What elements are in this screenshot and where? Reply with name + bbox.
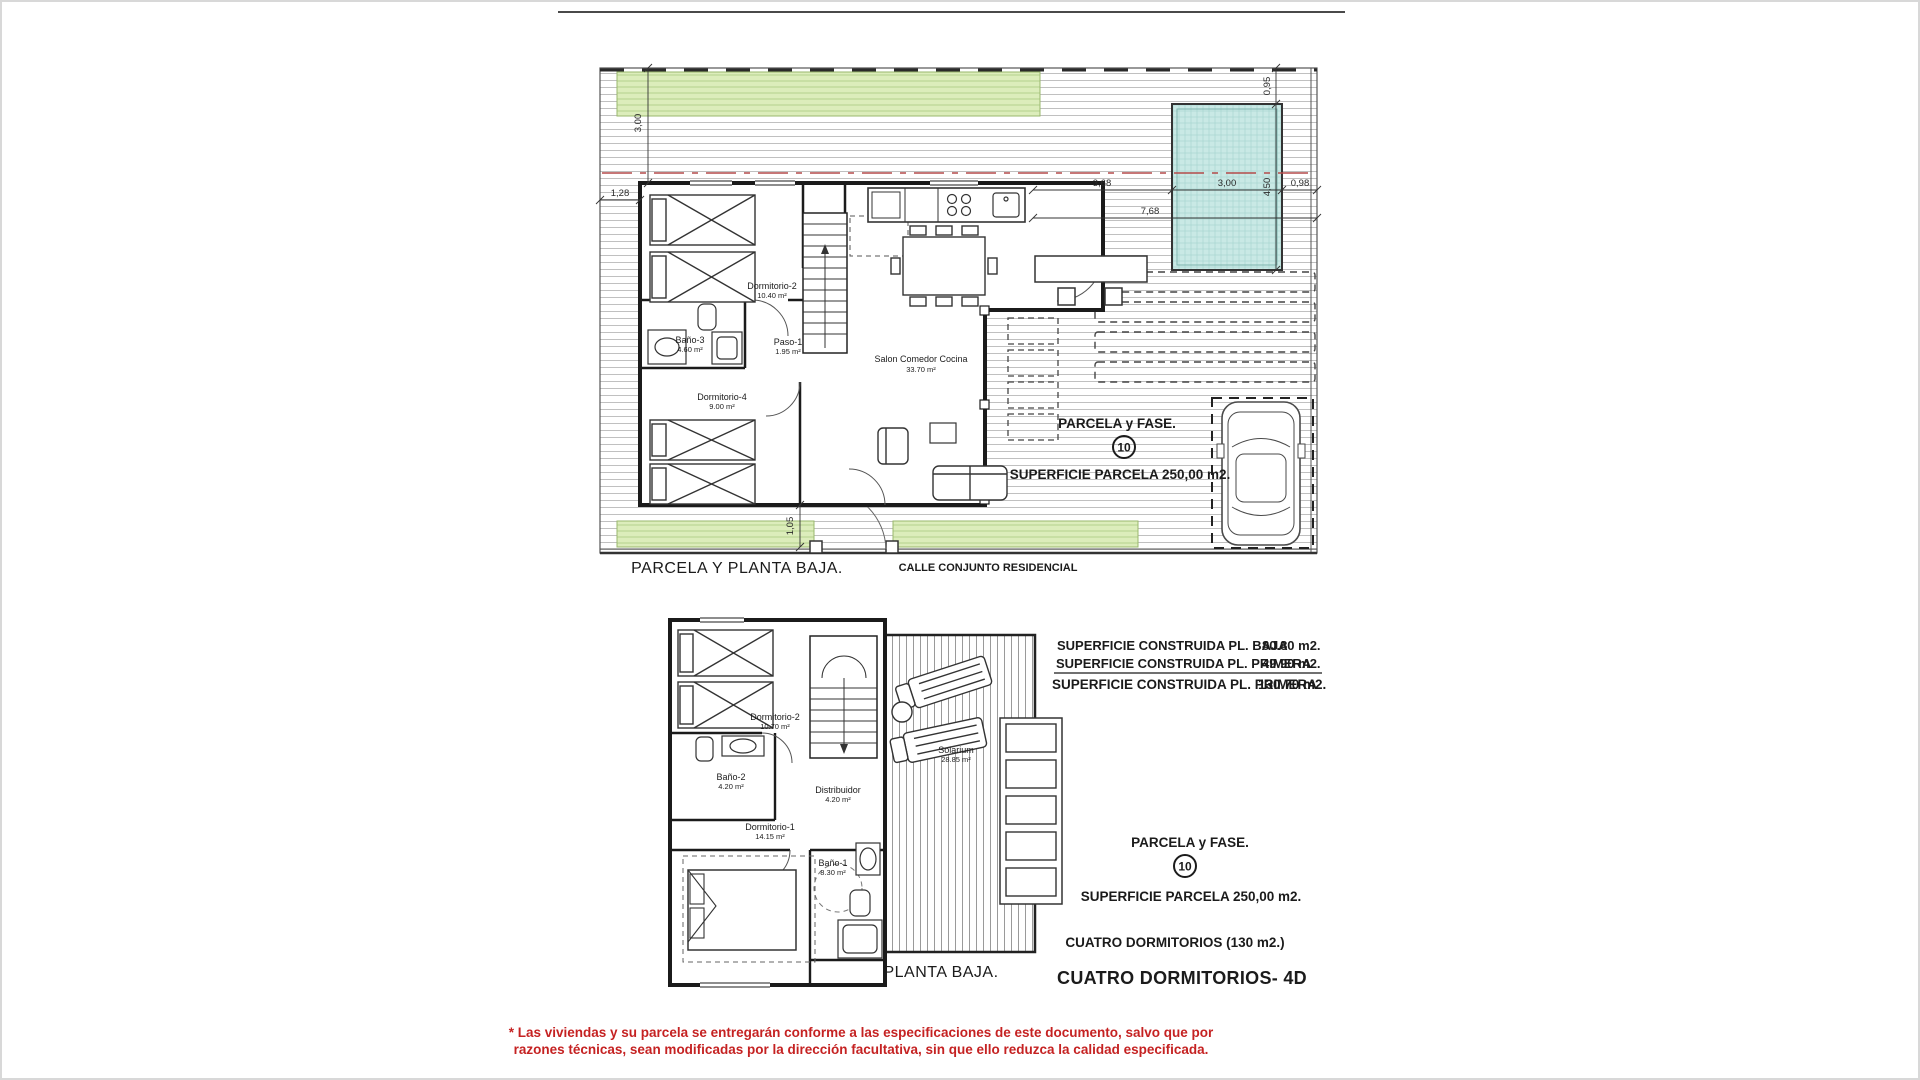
- coffee-table: [930, 423, 956, 443]
- dim-setback-left: 1,28: [611, 188, 630, 199]
- room-area-distribuidor: 4.20 m²: [825, 795, 851, 804]
- bed: [650, 420, 755, 460]
- house-first-floor: [670, 616, 885, 989]
- dim-pool-length: 4,50: [1262, 178, 1273, 197]
- window-top-2: [755, 179, 795, 187]
- built-area-row-value: 49.90 m2.: [1262, 656, 1321, 671]
- built-area-row-value: 80.80 m2.: [1262, 638, 1321, 653]
- room-area-paso1: 1.95 m²: [775, 347, 801, 356]
- room-area-bano2: 4.20 m²: [718, 782, 744, 791]
- disclaimer-line1: * Las viviendas y su parcela se entregar…: [509, 1025, 1214, 1040]
- dim-boundary-to-pool: 0,95: [1262, 77, 1273, 96]
- superficie-parcela-bottom: SUPERFICIE PARCELA 250,00 m2.: [1081, 889, 1302, 904]
- top-plan: 3,00 1,28 3,68 3,00 0,98 7,68 0,95 4,50 …: [558, 12, 1345, 577]
- room-label-dormitorio2-alta: Dormitorio-2: [750, 712, 800, 722]
- caption-parcela-planta-baja: PARCELA Y PLANTA BAJA.: [631, 560, 843, 577]
- bed: [678, 630, 773, 676]
- fase-number-bottom: 10: [1178, 860, 1192, 874]
- parcela-fase-label-top: PARCELA y FASE.: [1058, 416, 1176, 431]
- window: [700, 616, 744, 624]
- room-area-bano3: 4.60 m²: [677, 345, 703, 354]
- room-area-dormitorio4: 9.00 m²: [709, 402, 735, 411]
- mullion: [980, 306, 989, 315]
- tipologia-label: CUATRO DORMITORIOS (130 m2.): [1065, 935, 1284, 950]
- room-label-distribuidor: Distribuidor: [815, 785, 861, 795]
- room-label-dormitorio2: Dormitorio-2: [747, 281, 797, 291]
- mullion: [980, 400, 989, 409]
- bottom-plan: Dormitorio-2 10.70 m² Baño-2 4.20 m² Dis…: [670, 616, 1326, 989]
- room-label-bano2: Baño-2: [716, 772, 745, 782]
- floorplan-drawing: 3,00 1,28 3,68 3,00 0,98 7,68 0,95 4,50 …: [0, 0, 1920, 1080]
- dim-pool-width: 3,00: [1218, 178, 1237, 189]
- sofa: [933, 466, 1007, 500]
- disclaimer-line2: razones técnicas, sean modificadas por l…: [514, 1042, 1209, 1057]
- gate-post-right: [886, 541, 898, 553]
- room-label-dormitorio1: Dormitorio-1: [745, 822, 795, 832]
- kitchen-counter: [868, 188, 1025, 222]
- room-label-dormitorio4: Dormitorio-4: [697, 392, 747, 402]
- dim-pool-to-boundary: 0,98: [1291, 178, 1310, 189]
- bed: [650, 195, 755, 245]
- room-area-dormitorio2-alta: 10.70 m²: [760, 722, 790, 731]
- room-label-paso1: Paso-1: [774, 337, 803, 347]
- planter-steps: [1006, 724, 1056, 896]
- room-area-bano1: 8.30 m²: [820, 868, 846, 877]
- caption-planta-baja: PLANTA BAJA.: [883, 964, 998, 981]
- parcela-fase-label-bottom: PARCELA y FASE.: [1131, 835, 1249, 850]
- built-area-row-value: 130.70 m2.: [1258, 677, 1326, 692]
- room-label-salon: Salon Comedor Cocina: [874, 354, 967, 364]
- armchair: [878, 428, 908, 464]
- disclaimer: * Las viviendas y su parcela se entregar…: [509, 1025, 1214, 1057]
- lawn-strip-bottom-right: [893, 521, 1138, 547]
- built-area-row-label: SUPERFICIE CONSTRUIDA PL. BAJA: [1057, 638, 1288, 653]
- fase-number-top: 10: [1117, 441, 1131, 455]
- dim-house-to-pool: 3,68: [1093, 178, 1112, 189]
- lawn-strip-top: [617, 72, 1040, 116]
- room-area-dormitorio2: 10.40 m²: [757, 291, 787, 300]
- room-area-salon: 33.70 m²: [906, 365, 936, 374]
- staircase: [810, 636, 877, 758]
- superficie-parcela-top: SUPERFICIE PARCELA 250,00 m2.: [1010, 467, 1231, 482]
- built-areas-table: SUPERFICIE CONSTRUIDA PL. BAJA 80.80 m2.…: [1052, 638, 1326, 692]
- floorplan-sheet: 3,00 1,28 3,68 3,00 0,98 7,68 0,95 4,50 …: [0, 0, 1920, 1080]
- dim-lawn-depth: 3,00: [633, 114, 644, 133]
- room-label-bano3: Baño-3: [675, 335, 704, 345]
- solarium: [885, 635, 1062, 952]
- dim-total-right: 7,68: [1141, 206, 1160, 217]
- window: [700, 981, 770, 989]
- dim-rear-strip: 1,05: [785, 517, 796, 536]
- room-label-solarium: Solarium: [938, 745, 974, 755]
- room-area-dormitorio1: 14.15 m²: [755, 832, 785, 841]
- room-area-solarium: 28.85 m²: [941, 755, 971, 764]
- dining-table: [891, 226, 997, 306]
- window-kitchen: [930, 179, 978, 187]
- side-table: [892, 702, 912, 722]
- window-top-1: [690, 179, 732, 187]
- street-name-label: CALLE CONJUNTO RESIDENCIAL: [899, 562, 1078, 574]
- bed: [650, 464, 755, 504]
- modelo-label: CUATRO DORMITORIOS- 4D: [1057, 968, 1307, 988]
- bed: [683, 856, 815, 962]
- bed: [650, 252, 755, 302]
- gate-post-left: [810, 541, 822, 553]
- room-label-bano1: Baño-1: [818, 858, 847, 868]
